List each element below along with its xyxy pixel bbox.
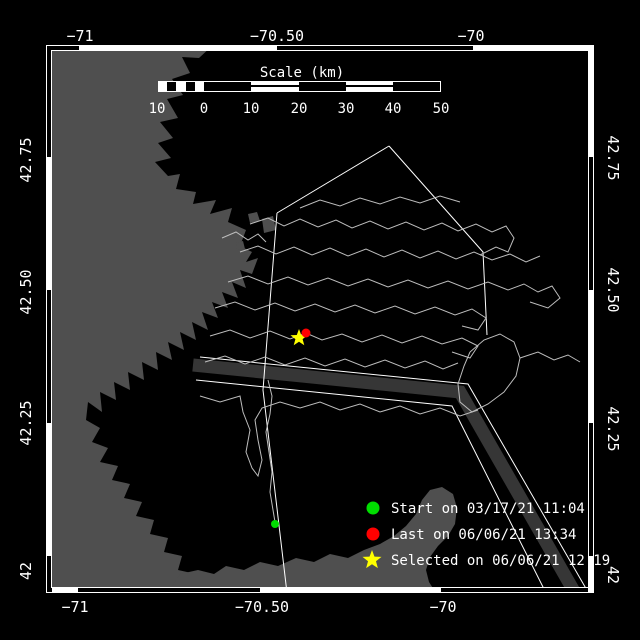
axis-label-top-lon: −70: [457, 27, 484, 45]
start-marker-icon: [367, 502, 380, 515]
axis-label-top-lon: −70.50: [250, 27, 304, 45]
boundary-line: [389, 146, 487, 335]
track-line: [200, 396, 478, 476]
scale-bar-segment-stripe: [346, 85, 393, 87]
scale-bar-segment: [204, 81, 251, 92]
legend-item-selected: Selected on 06/06/21 12:19: [362, 550, 610, 569]
scale-tick-label: 30: [338, 101, 355, 117]
scale-tick-label: 0: [200, 101, 208, 117]
axis-label-bottom-lon: −70.50: [235, 598, 289, 616]
last-point-marker[interactable]: [302, 329, 311, 338]
tracking-map-figure: −71−70.50−70−71−70.50−7042.7542.5042.254…: [0, 0, 640, 640]
scale-bar: 1001020304050: [149, 81, 450, 117]
scale-bar-segment: [186, 81, 195, 92]
axis-label-right-lat: 42.25: [604, 406, 622, 451]
legend-last-label: Last on 06/06/21 13:34: [391, 527, 576, 543]
axis-label-right-lat: 42.75: [604, 135, 622, 180]
track-line: [228, 276, 560, 308]
start-point-marker[interactable]: [271, 520, 279, 528]
legend-item-start: Start on 03/17/21 11:04: [367, 501, 585, 517]
map-canvas[interactable]: −71−70.50−70−71−70.50−7042.7542.5042.254…: [0, 0, 640, 640]
scale-bar-segment: [158, 81, 167, 92]
axis-label-bottom-lon: −71: [61, 598, 88, 616]
axis-label-top-lon: −71: [66, 27, 93, 45]
scale-bar-segment-stripe: [251, 85, 299, 87]
scale-tick-label: 50: [433, 101, 450, 117]
axis-label-right-lat: 42.50: [604, 267, 622, 312]
boundary-line: [277, 146, 389, 213]
track-line: [240, 246, 540, 262]
legend-selected-label: Selected on 06/06/21 12:19: [391, 553, 610, 569]
scale-bar-segment: [299, 81, 346, 92]
land-polygon: [46, 45, 258, 593]
scale-bar-segment: [167, 81, 176, 92]
scale-bar-segment: [393, 81, 441, 92]
scale-tick-label: 20: [291, 101, 308, 117]
axis-label-left-lat: 42.50: [17, 269, 35, 314]
scale-bar-segment: [176, 81, 186, 92]
track-line: [300, 196, 460, 208]
scale-tick-label: 10: [149, 101, 166, 117]
legend-item-last: Last on 06/06/21 13:34: [367, 527, 577, 543]
legend-start-label: Start on 03/17/21 11:04: [391, 501, 585, 517]
scale-bar-segment: [195, 81, 204, 92]
last-marker-icon: [367, 528, 380, 541]
scale-tick-label: 40: [385, 101, 402, 117]
track-line: [210, 330, 478, 358]
axis-label-left-lat: 42.25: [17, 400, 35, 445]
axis-label-left-lat: 42.75: [17, 137, 35, 182]
scale-tick-label: 10: [243, 101, 260, 117]
track-line: [250, 218, 514, 255]
scale-bar-title: Scale (km): [260, 65, 344, 81]
track-line: [215, 302, 486, 330]
legend: Start on 03/17/21 11:04 Last on 06/06/21…: [362, 501, 610, 569]
track-line: [520, 352, 580, 362]
axis-label-left-lat: 42: [17, 562, 35, 580]
axis-label-bottom-lon: −70: [429, 598, 456, 616]
